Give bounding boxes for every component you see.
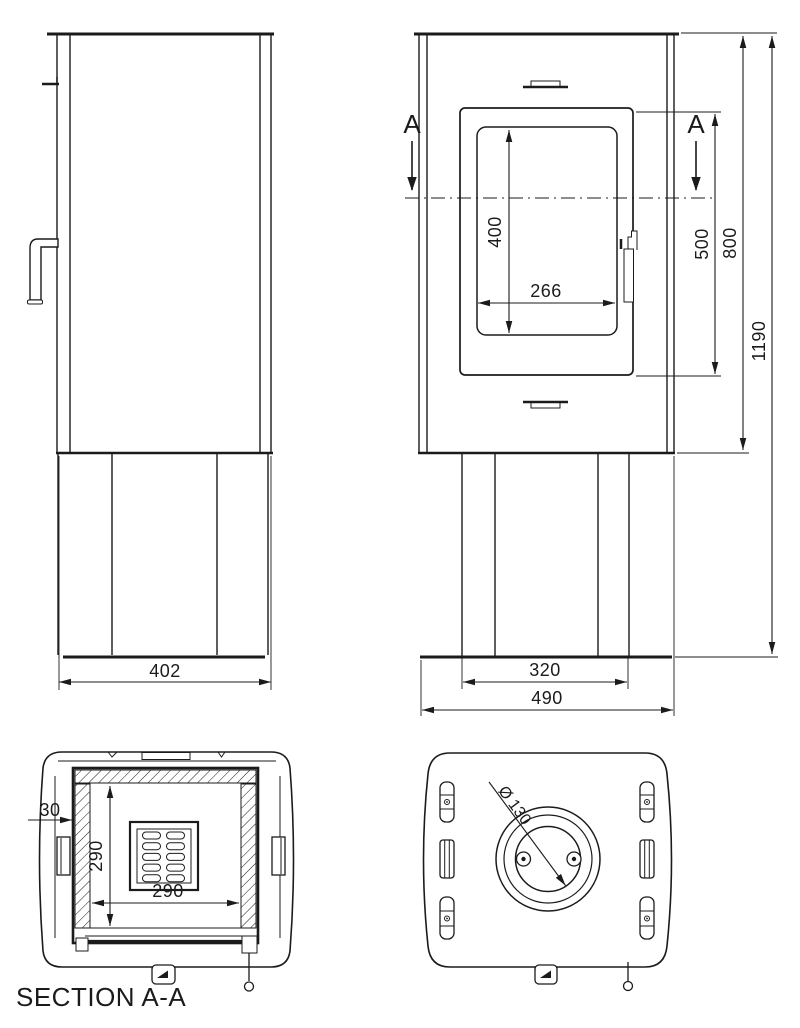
stove-technical-drawing: 402 — [0, 0, 800, 1028]
section-title: SECTION A-A — [16, 982, 186, 1012]
dim-body-depth: 402 — [59, 456, 271, 690]
flue-outlet — [496, 807, 600, 911]
dim-label-500: 500 — [692, 228, 712, 260]
section-marker-left: A — [403, 109, 421, 139]
side-view: 402 — [28, 34, 275, 690]
hinge-block-right — [242, 936, 257, 953]
dim-label-320: 320 — [529, 660, 561, 680]
dim-label-flue: Ø 130 — [494, 783, 534, 828]
dim-label-1190: 1190 — [749, 321, 769, 362]
hinge-block-left — [76, 938, 88, 951]
flue-opening-mark — [142, 753, 190, 760]
door-handle-front — [621, 231, 637, 302]
top-casing-outline — [424, 753, 672, 967]
flue-collar — [523, 81, 568, 87]
dim-label-800: 800 — [720, 227, 740, 259]
dim-label-290-h: 290 — [152, 881, 184, 901]
vent-slots-left — [440, 782, 454, 939]
dim-label-490: 490 — [531, 688, 563, 708]
dim-flue-diameter: Ø 130 — [489, 782, 566, 886]
vent-slots-right — [640, 782, 654, 939]
latch-pin-section — [245, 953, 254, 991]
dim-label-400: 400 — [485, 216, 505, 248]
damper-lever — [42, 77, 59, 85]
ash-vent — [523, 402, 568, 408]
dim-label-30: 30 — [39, 800, 60, 820]
dim-door-height: 500 — [636, 112, 721, 376]
dim-pedestal-width: 320 — [462, 658, 628, 689]
side-bracket-left — [57, 837, 70, 875]
firebrick-right — [241, 784, 256, 928]
door-handle-side — [28, 239, 59, 304]
drawing-canvas: 402 — [0, 0, 800, 1028]
dim-glass-width: 266 — [478, 281, 615, 303]
side-bracket-right — [272, 837, 285, 875]
dim-label-266: 266 — [530, 281, 562, 301]
dim-label-402: 402 — [149, 661, 181, 681]
door-latch-top — [535, 965, 557, 984]
front-view: A A 400 266 500 800 1190 — [403, 33, 778, 716]
section-marker-right: A — [687, 109, 705, 139]
dim-label-290-v: 290 — [86, 840, 106, 872]
grate — [130, 822, 198, 890]
pedestal-side — [58, 454, 268, 657]
top-view: Ø 130 — [424, 753, 672, 991]
dim-liner-gap: 30 — [28, 800, 72, 820]
pedestal-front — [420, 454, 672, 657]
firebrick-top — [75, 770, 256, 783]
section-aa-view: 30 290 290 SECTION A-A — [16, 752, 294, 1012]
